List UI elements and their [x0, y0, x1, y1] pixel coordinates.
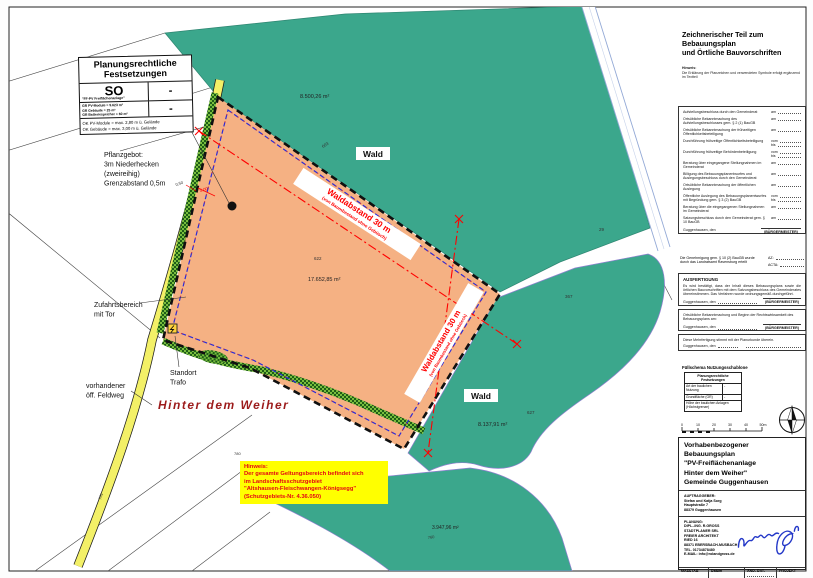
parcel-627: 627	[527, 410, 535, 415]
approval-note: Die Genehmigung gem. § 10 (2) BauGB wurd…	[678, 255, 806, 268]
parcel-622: 622	[314, 256, 322, 261]
wald-label-east: Wald	[464, 389, 498, 402]
title-block: Vorhabenbezogener Bebauungsplan "PV-Frei…	[678, 437, 806, 570]
svg-text:Trafo: Trafo	[170, 380, 186, 387]
nutzungsschablone-table: Planungsrechtliche Festsetzungen Art der…	[684, 372, 742, 412]
svg-text:mit Tor: mit Tor	[94, 312, 116, 319]
area-label-plan: 17.652,85 m²	[308, 277, 341, 283]
legend-row-so: SO "FF-PV Freiflächenanlage" -	[80, 81, 192, 103]
svg-text:Wald: Wald	[363, 149, 383, 159]
svg-text:10: 10	[696, 423, 700, 427]
procedure-row: Beratung über die eingegangenen Stellung…	[683, 205, 801, 213]
svg-text:3m Niederhecken: 3m Niederhecken	[104, 162, 159, 169]
procedure-row: Beratung über eingegangene Stellungnahme…	[683, 161, 801, 169]
parcel-780: 780	[234, 451, 241, 456]
svg-text:0: 0	[681, 423, 683, 427]
so-value: -	[149, 84, 192, 97]
procedure-row: Ortsübliche Bekanntmachung der frühzeiti…	[683, 128, 801, 136]
svg-text:50m: 50m	[760, 423, 767, 427]
svg-text:vorhandener: vorhandener	[86, 383, 126, 390]
svg-text:Zufahrtsbereich: Zufahrtsbereich	[94, 302, 143, 309]
so-footnote: "FF-PV Freiflächenanlage"	[82, 96, 147, 101]
signature-scribble	[731, 513, 803, 561]
svg-text:30: 30	[728, 423, 732, 427]
parcel-367: 367	[565, 294, 573, 299]
svg-text:40: 40	[744, 423, 748, 427]
bekanntmachung-box: Ortsübliche Bekanntmachung und Beginn de…	[678, 309, 806, 331]
panel-note: Hinweis: Die Erklärung der Planzeichen u…	[682, 66, 804, 80]
legend-row-ok: OK PV-Module = max. 2,80 m ü. Gelände OK…	[80, 117, 192, 134]
parcel-29: 29	[599, 227, 605, 232]
gr-value: -	[150, 102, 193, 115]
planner-section: PLANUNG: DIPL.-ING. R.GROSS STADTPLANER …	[679, 517, 805, 568]
procedure-row: Ortsübliche Bekanntmachung der öffentlic…	[683, 183, 801, 191]
area-label-east-forest: 8.137,91 m²	[478, 422, 508, 428]
trafo-symbol	[168, 324, 177, 333]
point-marker	[228, 202, 237, 211]
ausfertigung-box: AUSFERTIGUNG Es wird bestätigt, dass der…	[678, 273, 806, 306]
street-name: Hinter dem Weiher	[158, 398, 289, 412]
festsetzungen-legend-box: Planungsrechtliche Festsetzungen SO "FF-…	[78, 54, 194, 135]
panel-header: Zeichnerischer Teil zum Bebauungsplan un…	[682, 30, 808, 57]
protected-area-notice: Hinweis: Der gesamte Geltungsbereich bef…	[240, 461, 388, 504]
legend-title: Planungsrechtliche Festsetzungen	[79, 55, 192, 83]
title-block-table: MASSTAB1: 500 Datum16.04.2024 ÄND.-DAT.1…	[679, 568, 805, 578]
plan-title: Vorhabenbezogener Bebauungsplan "PV-Frei…	[679, 438, 805, 491]
svg-text:Pflanzgebot:: Pflanzgebot:	[104, 152, 143, 159]
fuellschema-title: Füllschema Nutzungsschablone	[682, 365, 748, 370]
svg-text:(zweireihig): (zweireihig)	[104, 171, 140, 178]
procedure-row: Satzungsbeschluss durch den Gemeinderat …	[683, 216, 801, 224]
bebauungsplan-sheet: { "legend_box": { "title_line1": "Planun…	[0, 0, 813, 578]
procedure-row: Billigung des Bebauungsplanentwurfes und…	[683, 172, 801, 180]
procedure-row: Öffentliche Auslegung des Bebauungsplane…	[683, 194, 801, 202]
wald-label-north: Wald	[356, 147, 390, 160]
procedure-row: Durchführung frühzeitige Öffentlichkeits…	[683, 139, 801, 147]
area-label-south-forest: 3.947,96 m²	[432, 525, 459, 531]
area-label-north-forest: 8.500,26 m²	[300, 94, 330, 100]
procedure-row: Ortsübliche Bekanntmachung des Aufstellu…	[683, 117, 801, 125]
svg-text:20: 20	[712, 423, 716, 427]
svg-text:Grenzabstand 0,5m: Grenzabstand 0,5m	[104, 181, 166, 188]
svg-text:Wald: Wald	[471, 391, 491, 401]
mehrfertigung-box: Diese Mehrfertigung stimmt mit der Planu…	[678, 334, 806, 351]
procedure-row: Durchführung frühzeitige Behördenbeteili…	[683, 150, 801, 158]
procedure-signoff-row: Guggenhausen, den(BÜRGERMEISTER)	[683, 228, 801, 234]
procedure-row: Aufstellungsbeschluss durch den Gemeinde…	[683, 110, 801, 114]
svg-text:öff. Feldweg: öff. Feldweg	[86, 393, 124, 400]
svg-text:Standort: Standort	[170, 370, 197, 377]
procedure-records-box: Aufstellungsbeschluss durch den Gemeinde…	[678, 106, 806, 234]
